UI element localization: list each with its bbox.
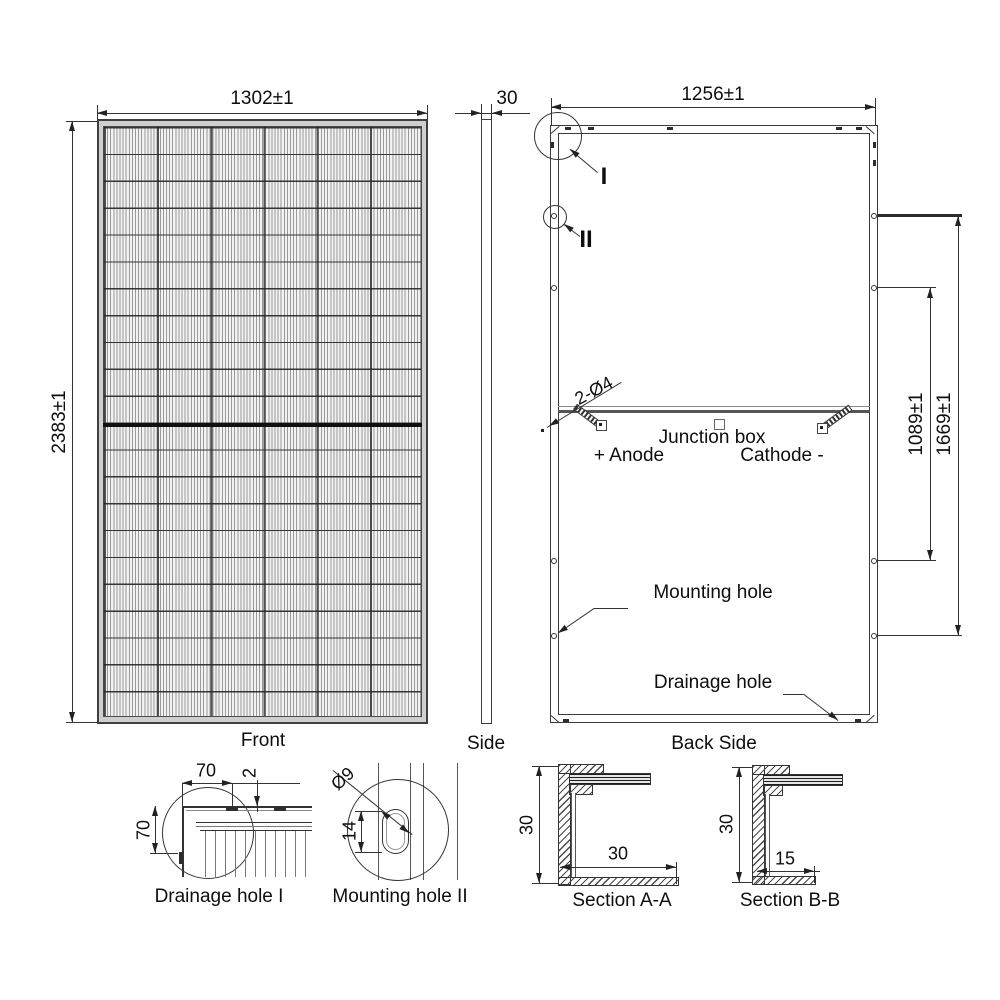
dim-ext-line — [878, 560, 936, 561]
aa-height-dim: 30 — [517, 815, 538, 835]
front-label: Front — [241, 730, 285, 752]
arrow-right-icon — [471, 110, 481, 116]
frame-inner-wall-line — [571, 793, 576, 878]
dim-ext-line — [150, 853, 178, 854]
leader-line — [594, 608, 628, 609]
dim-line-holes-outer — [958, 215, 959, 635]
drain-lip-dim: 2 — [240, 768, 261, 778]
glass-edge-line — [196, 822, 312, 823]
frame-edge-line — [182, 806, 184, 877]
drain-height-dim: 70 — [134, 820, 155, 840]
frame-edge-line — [186, 810, 312, 811]
arrow-left-icon — [492, 110, 502, 116]
arrow-up-icon — [69, 121, 75, 131]
back-label: Back Side — [671, 733, 757, 755]
arrow-right-icon — [666, 864, 676, 870]
arrow-up-icon — [736, 767, 742, 777]
front-height-dim: 2383±1 — [49, 390, 71, 453]
leader-line — [783, 694, 804, 695]
drain-width-dim: 70 — [196, 761, 216, 782]
cathode-label: Cathode - — [740, 445, 823, 467]
side-profile — [481, 119, 492, 724]
arrow-right-icon — [804, 868, 814, 874]
glass-edge-line — [196, 826, 312, 827]
drawing-canvas: 1302±1 2383±1 Front 30 Side — [0, 0, 1000, 1000]
dim-line-back-width — [551, 107, 875, 108]
frame-edge-line — [457, 763, 458, 880]
arrow-down-icon — [69, 712, 75, 722]
connector-dot-icon — [820, 426, 823, 429]
dim-ext-line — [814, 866, 815, 883]
frame-inner-wall-line — [765, 794, 770, 877]
detail-mounting-label: Mounting hole II — [332, 886, 467, 908]
dim-line-holes-inner — [930, 287, 931, 560]
holes-inner-dim: 1089±1 — [906, 392, 928, 455]
dim-line-front-width — [97, 113, 427, 114]
holes-outer-dim: 1669±1 — [934, 392, 956, 455]
mounting-hole-icon — [551, 285, 557, 291]
mounting-hole-icon — [551, 558, 557, 564]
arrow-down-icon — [536, 873, 542, 883]
arrow-left-icon — [97, 110, 107, 116]
section-aa-label: Section A-A — [572, 890, 671, 912]
busbar-line — [103, 423, 422, 427]
drainage-slot — [226, 807, 238, 811]
frame-slot — [856, 127, 862, 130]
frame-slot — [873, 160, 876, 166]
dim-ext-line — [427, 105, 428, 120]
front-panel-grid — [103, 126, 422, 717]
dim-ext-line — [532, 883, 558, 884]
back-width-dim: 1256±1 — [681, 84, 744, 106]
mounting-hole-icon — [551, 633, 557, 639]
frame-slot — [563, 719, 569, 722]
dim-ext-line — [182, 783, 183, 806]
arrow-down-icon — [358, 842, 364, 852]
side-label: Side — [467, 733, 505, 755]
arrow-right-icon — [222, 780, 232, 786]
frame-slot — [667, 127, 673, 130]
mounting-hole-icon — [871, 213, 877, 219]
side-thickness-dim: 30 — [496, 88, 517, 110]
junction-rail — [558, 406, 870, 407]
bb-flange-dim: 15 — [775, 849, 795, 870]
dim-ext-line — [676, 862, 677, 884]
mount-length-dim: 14 — [340, 821, 361, 841]
frame-edge-line — [182, 806, 312, 808]
dim-ext-line — [66, 722, 97, 723]
arrow-down-icon — [927, 550, 933, 560]
frame-slot — [836, 127, 842, 130]
arrow-up-icon — [927, 288, 933, 298]
arrow-up-icon — [536, 766, 542, 776]
arrow-left-icon — [182, 780, 192, 786]
dim-ext-line — [875, 98, 876, 125]
dim-line-drain-width — [182, 783, 300, 784]
junction-rail — [558, 410, 870, 413]
dim-line-front-height — [72, 121, 73, 722]
front-width-dim: 1302±1 — [230, 88, 293, 110]
aa-flange-dim: 30 — [608, 844, 628, 865]
dim-line-bb-height — [739, 767, 740, 882]
arrow-up-icon — [955, 216, 961, 226]
arrow-up-icon — [152, 806, 158, 816]
detail-i-label: I — [601, 163, 608, 191]
cell-finger-lines — [205, 831, 312, 877]
mounting-hole-icon — [871, 558, 877, 564]
dim-ext-line — [481, 104, 482, 119]
detail-drainage-label: Drainage hole I — [155, 886, 284, 908]
frame-bottom-flange-section — [558, 877, 679, 886]
mounting-hole-label: Mounting hole — [653, 582, 772, 604]
anode-label: + Anode — [594, 445, 664, 467]
dim-ext-line — [232, 783, 233, 806]
dim-line-aa-flange — [560, 867, 676, 868]
arrow-up-icon — [358, 811, 364, 821]
arrow-down-icon — [955, 625, 961, 635]
dim-line-aa-height — [539, 766, 540, 883]
mounting-hole-icon — [871, 285, 877, 291]
dim-ext-line — [355, 852, 382, 853]
arrow-down-icon — [254, 796, 260, 806]
dim-ext-line — [878, 635, 962, 636]
mount-diameter-dim: Ø9 — [327, 763, 359, 795]
section-bb-label: Section B-B — [740, 890, 840, 912]
connector-dot-icon — [599, 423, 602, 426]
arrow-left-icon — [757, 868, 767, 874]
arrow-down-icon — [736, 872, 742, 882]
mounting-hole-icon — [871, 633, 877, 639]
arrow-right-icon — [865, 104, 875, 110]
frame-slot — [588, 127, 594, 130]
frame-bottom-flange-section — [752, 876, 816, 885]
frame-slot — [873, 142, 876, 148]
dim-ext-line — [732, 882, 752, 883]
leader-end-dot — [541, 429, 544, 432]
arrow-down-icon — [152, 843, 158, 853]
dim-ext-line — [878, 214, 962, 217]
drainage-slot — [274, 807, 286, 811]
detail-ii-label: II — [579, 226, 592, 254]
drainage-hole-label: Drainage hole — [654, 672, 772, 694]
bb-height-dim: 30 — [717, 814, 738, 834]
arrow-right-icon — [417, 110, 427, 116]
frame-slot — [855, 719, 861, 722]
drainage-slot — [179, 852, 183, 864]
arrow-left-icon — [560, 864, 570, 870]
arrow-left-icon — [551, 104, 561, 110]
